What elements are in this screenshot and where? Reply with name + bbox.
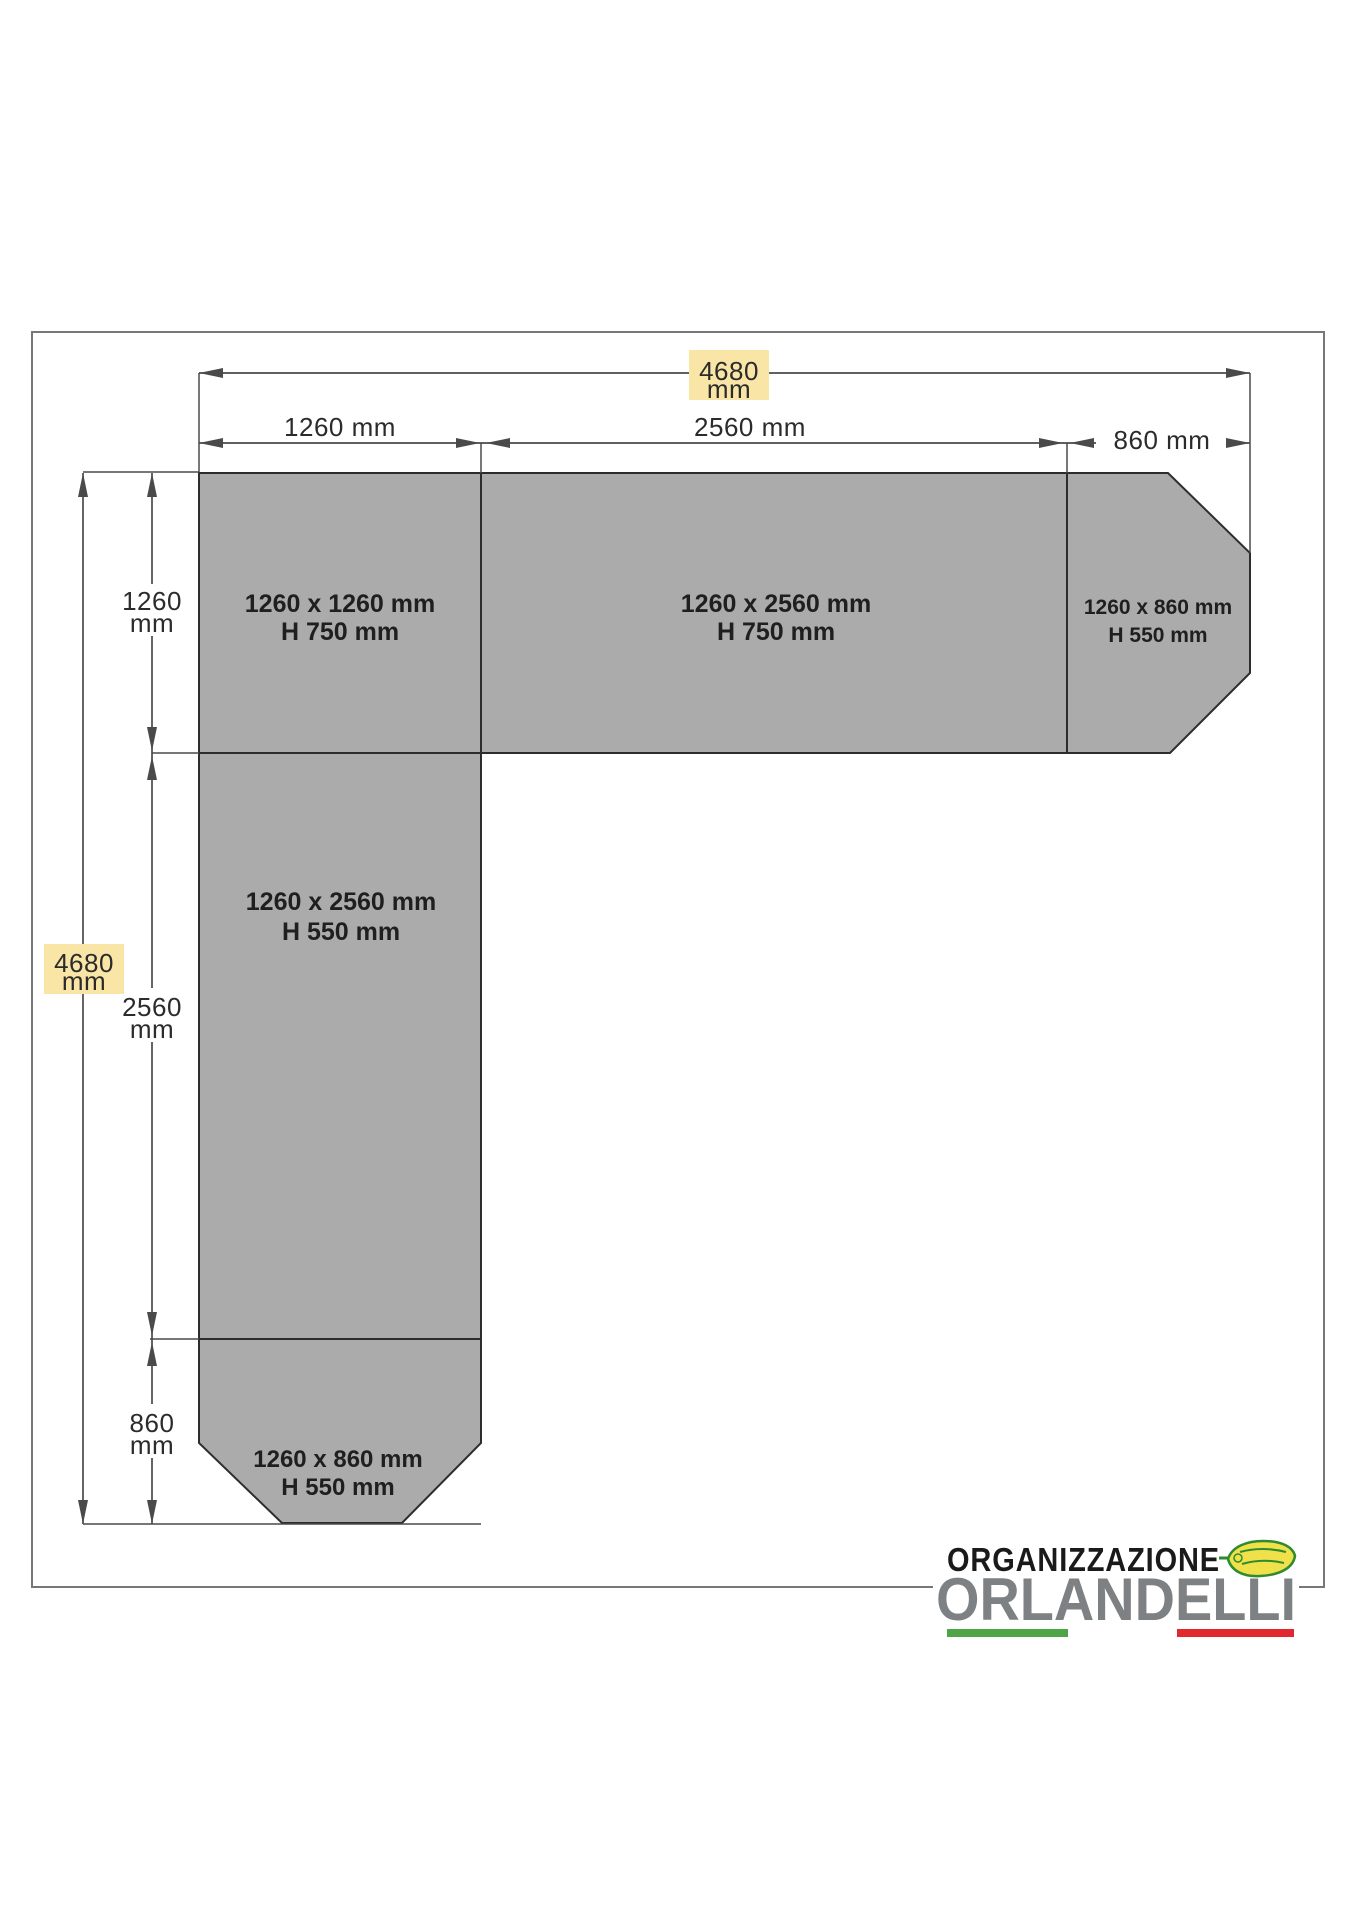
top-segment-3-label: 860 mm: [1114, 425, 1211, 455]
logo-name-text: ORLANDELLI: [936, 1566, 1296, 1633]
panel-top-middle-size: 1260 x 2560 mm: [681, 590, 871, 618]
panel-left-vertical-height: H 550 mm: [282, 918, 400, 946]
total-width-unit: mm: [707, 374, 751, 404]
layout-diagram: 4680 mm 1260 mm 2560 mm 860 mm 4680 mm 1…: [0, 0, 1357, 1920]
left-segment-3-unit: mm: [130, 1430, 174, 1460]
panel-top-middle-height: H 750 mm: [717, 618, 835, 646]
page: 4680 mm 1260 mm 2560 mm 860 mm 4680 mm 1…: [0, 0, 1357, 1920]
panel-left-vertical: [199, 753, 481, 1339]
panel-bottom-left-size: 1260 x 860 mm: [253, 1446, 422, 1473]
panel-bottom-left-height: H 550 mm: [281, 1474, 394, 1501]
panel-left-vertical-size: 1260 x 2560 mm: [246, 888, 436, 916]
flag-red-bar: [1177, 1629, 1294, 1637]
flag-green-bar: [947, 1629, 1068, 1637]
left-segment-2-unit: mm: [130, 1014, 174, 1044]
panel-top-right-size: 1260 x 860 mm: [1084, 596, 1232, 619]
left-segment-1-unit: mm: [130, 608, 174, 638]
panel-top-left-height: H 750 mm: [281, 618, 399, 646]
total-height-unit: mm: [62, 966, 106, 996]
panel-top-right-height: H 550 mm: [1108, 624, 1207, 647]
top-segment-2-label: 2560 mm: [694, 412, 806, 442]
logo: ORGANIZZAZIONE ORLANDELLI: [933, 1538, 1299, 1637]
top-segment-1-label: 1260 mm: [284, 412, 396, 442]
panel-top-left-size: 1260 x 1260 mm: [245, 590, 435, 618]
